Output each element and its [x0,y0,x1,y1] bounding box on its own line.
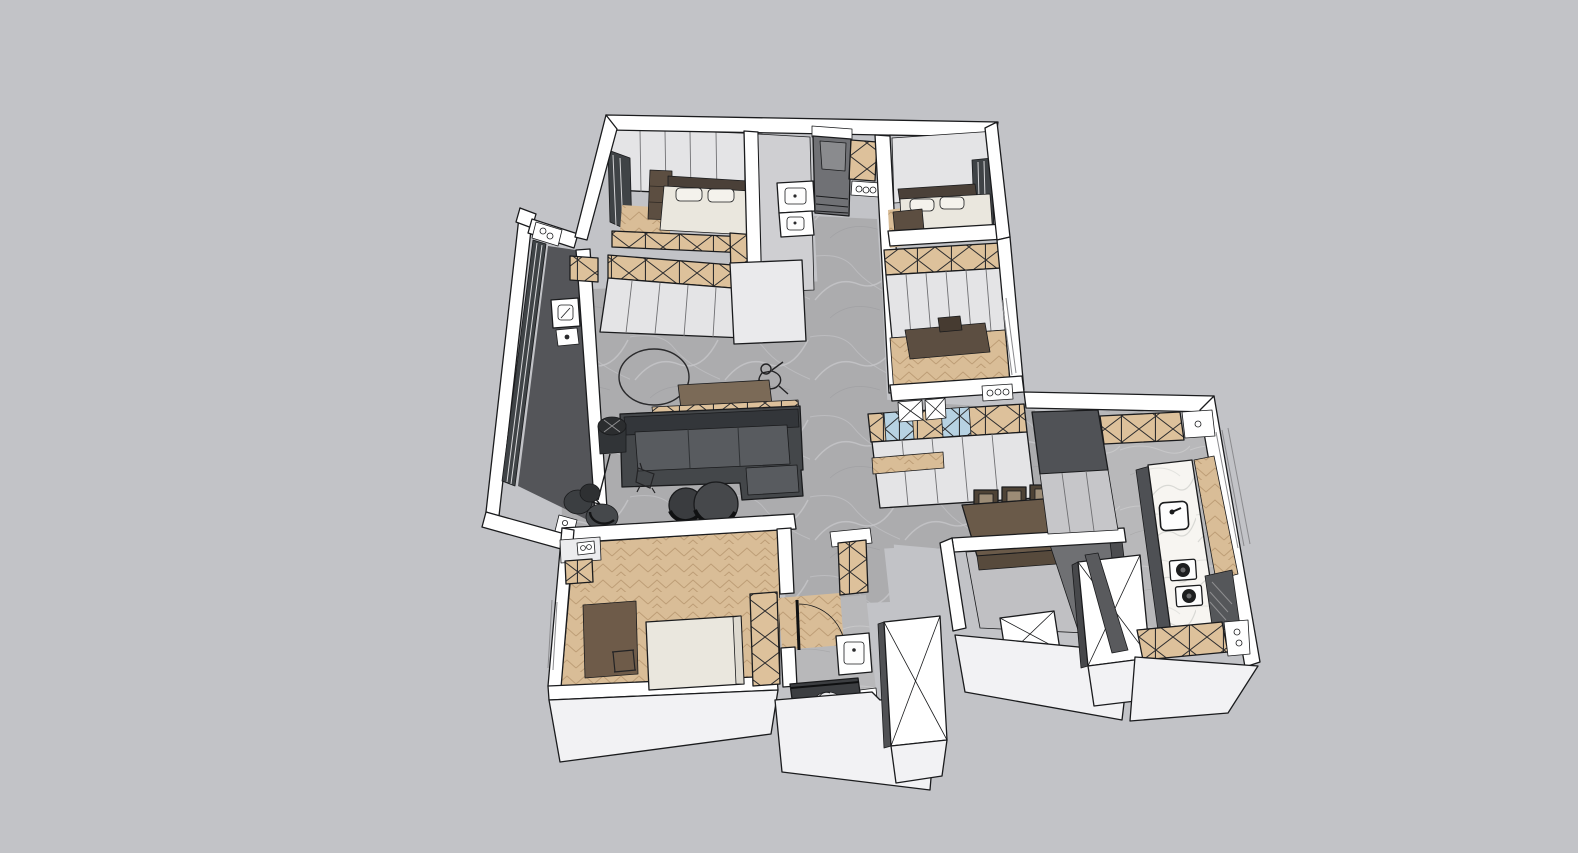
3d-model-viewport[interactable]: SketchUp-style 3D apartment floor plan m… [0,0,1578,853]
study [884,237,1024,401]
sofa-seat [635,425,790,471]
vent-plate-study [982,384,1013,401]
vent-plate-kitchen-top [1182,410,1215,438]
chaise-seat [746,465,799,495]
shoe-cabinet-x [849,140,877,181]
pillow [676,188,702,201]
bedroom3-bed [646,616,744,690]
duvet [660,186,752,235]
pillow [708,189,734,202]
bathroom-vanity [836,633,872,675]
tall-dark-cabinets [1032,410,1108,474]
upper-x-cabinets [1100,412,1184,444]
corner-cabinet-x [565,559,593,584]
shaft-a-face [891,740,947,783]
bathroom-left-wall-lower [781,647,797,687]
kitchen-sink [1159,501,1189,531]
vent-plate-entry [851,181,880,197]
hall-x-cabinet [838,540,868,595]
entry-landing [820,141,846,171]
desk-box [938,316,962,332]
kitchen-top-wall [1024,392,1214,412]
tall-cabinet-fronts [600,278,745,338]
pillow [940,197,964,209]
vent-plate-kitchen-bottom [1224,620,1250,656]
hall-floor-upper [814,216,882,293]
cabinet-x-box [570,256,598,282]
storage-block [730,260,806,344]
vanity-sink-2 [779,211,814,237]
vent-plate-bedroom3 [577,541,595,555]
bathroom-door-nook-floor [778,593,844,650]
cabinet-fronts [1040,470,1118,534]
door-leaf [797,600,799,650]
bathroom-left-wall-upper [777,528,794,594]
brown-rug [583,601,638,678]
vanity-sink-1 [777,181,815,213]
bedroom3-wardrobe-x [750,592,780,686]
